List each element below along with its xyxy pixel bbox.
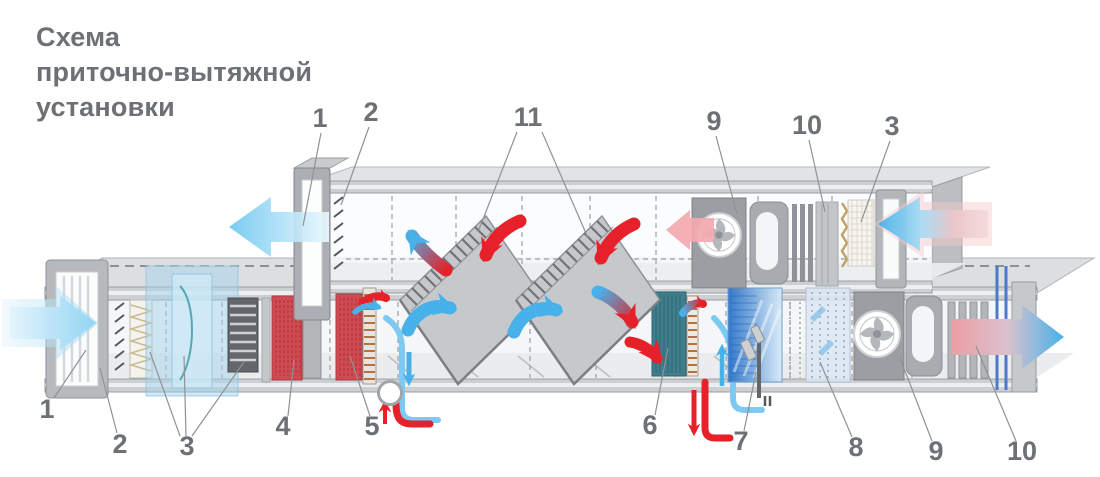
exhaust-fan	[692, 198, 813, 288]
callout-bottom-8: 8	[848, 432, 863, 462]
callout-bottom-6: 6	[642, 410, 657, 440]
callout-bottom-10: 10	[1007, 436, 1037, 466]
circulation-pump-icon	[379, 382, 402, 405]
schematic-svg: 1 2 11 9 10 3 1 2 3 4 5 6 7 8 9 10	[0, 0, 1100, 477]
callout-top-3: 3	[884, 111, 899, 141]
callout-bottom-9: 9	[928, 436, 943, 466]
callout-top-2: 2	[363, 97, 378, 127]
callout-top-1: 1	[312, 103, 327, 133]
callout-bottom-1: 1	[39, 394, 54, 424]
frame-post	[262, 298, 270, 382]
ventilation-unit-diagram: Схема приточно-вытяжной установки	[0, 0, 1100, 477]
callout-bottom-3: 3	[179, 431, 194, 461]
callout-bottom-7: 7	[733, 426, 748, 456]
panel-filters	[146, 266, 238, 396]
callout-bottom-2: 2	[112, 429, 127, 459]
humidifier	[728, 288, 782, 398]
supply-fan-icon	[854, 311, 900, 357]
callout-bottom-4: 4	[275, 411, 290, 441]
callout-top-9: 9	[706, 106, 721, 136]
callout-bottom-5: 5	[364, 411, 379, 441]
callout-top-11: 11	[514, 102, 543, 132]
callout-top-10: 10	[792, 110, 822, 140]
slat-filter	[228, 298, 258, 372]
supply-fan	[854, 292, 942, 380]
silencer-exhaust	[816, 202, 838, 286]
